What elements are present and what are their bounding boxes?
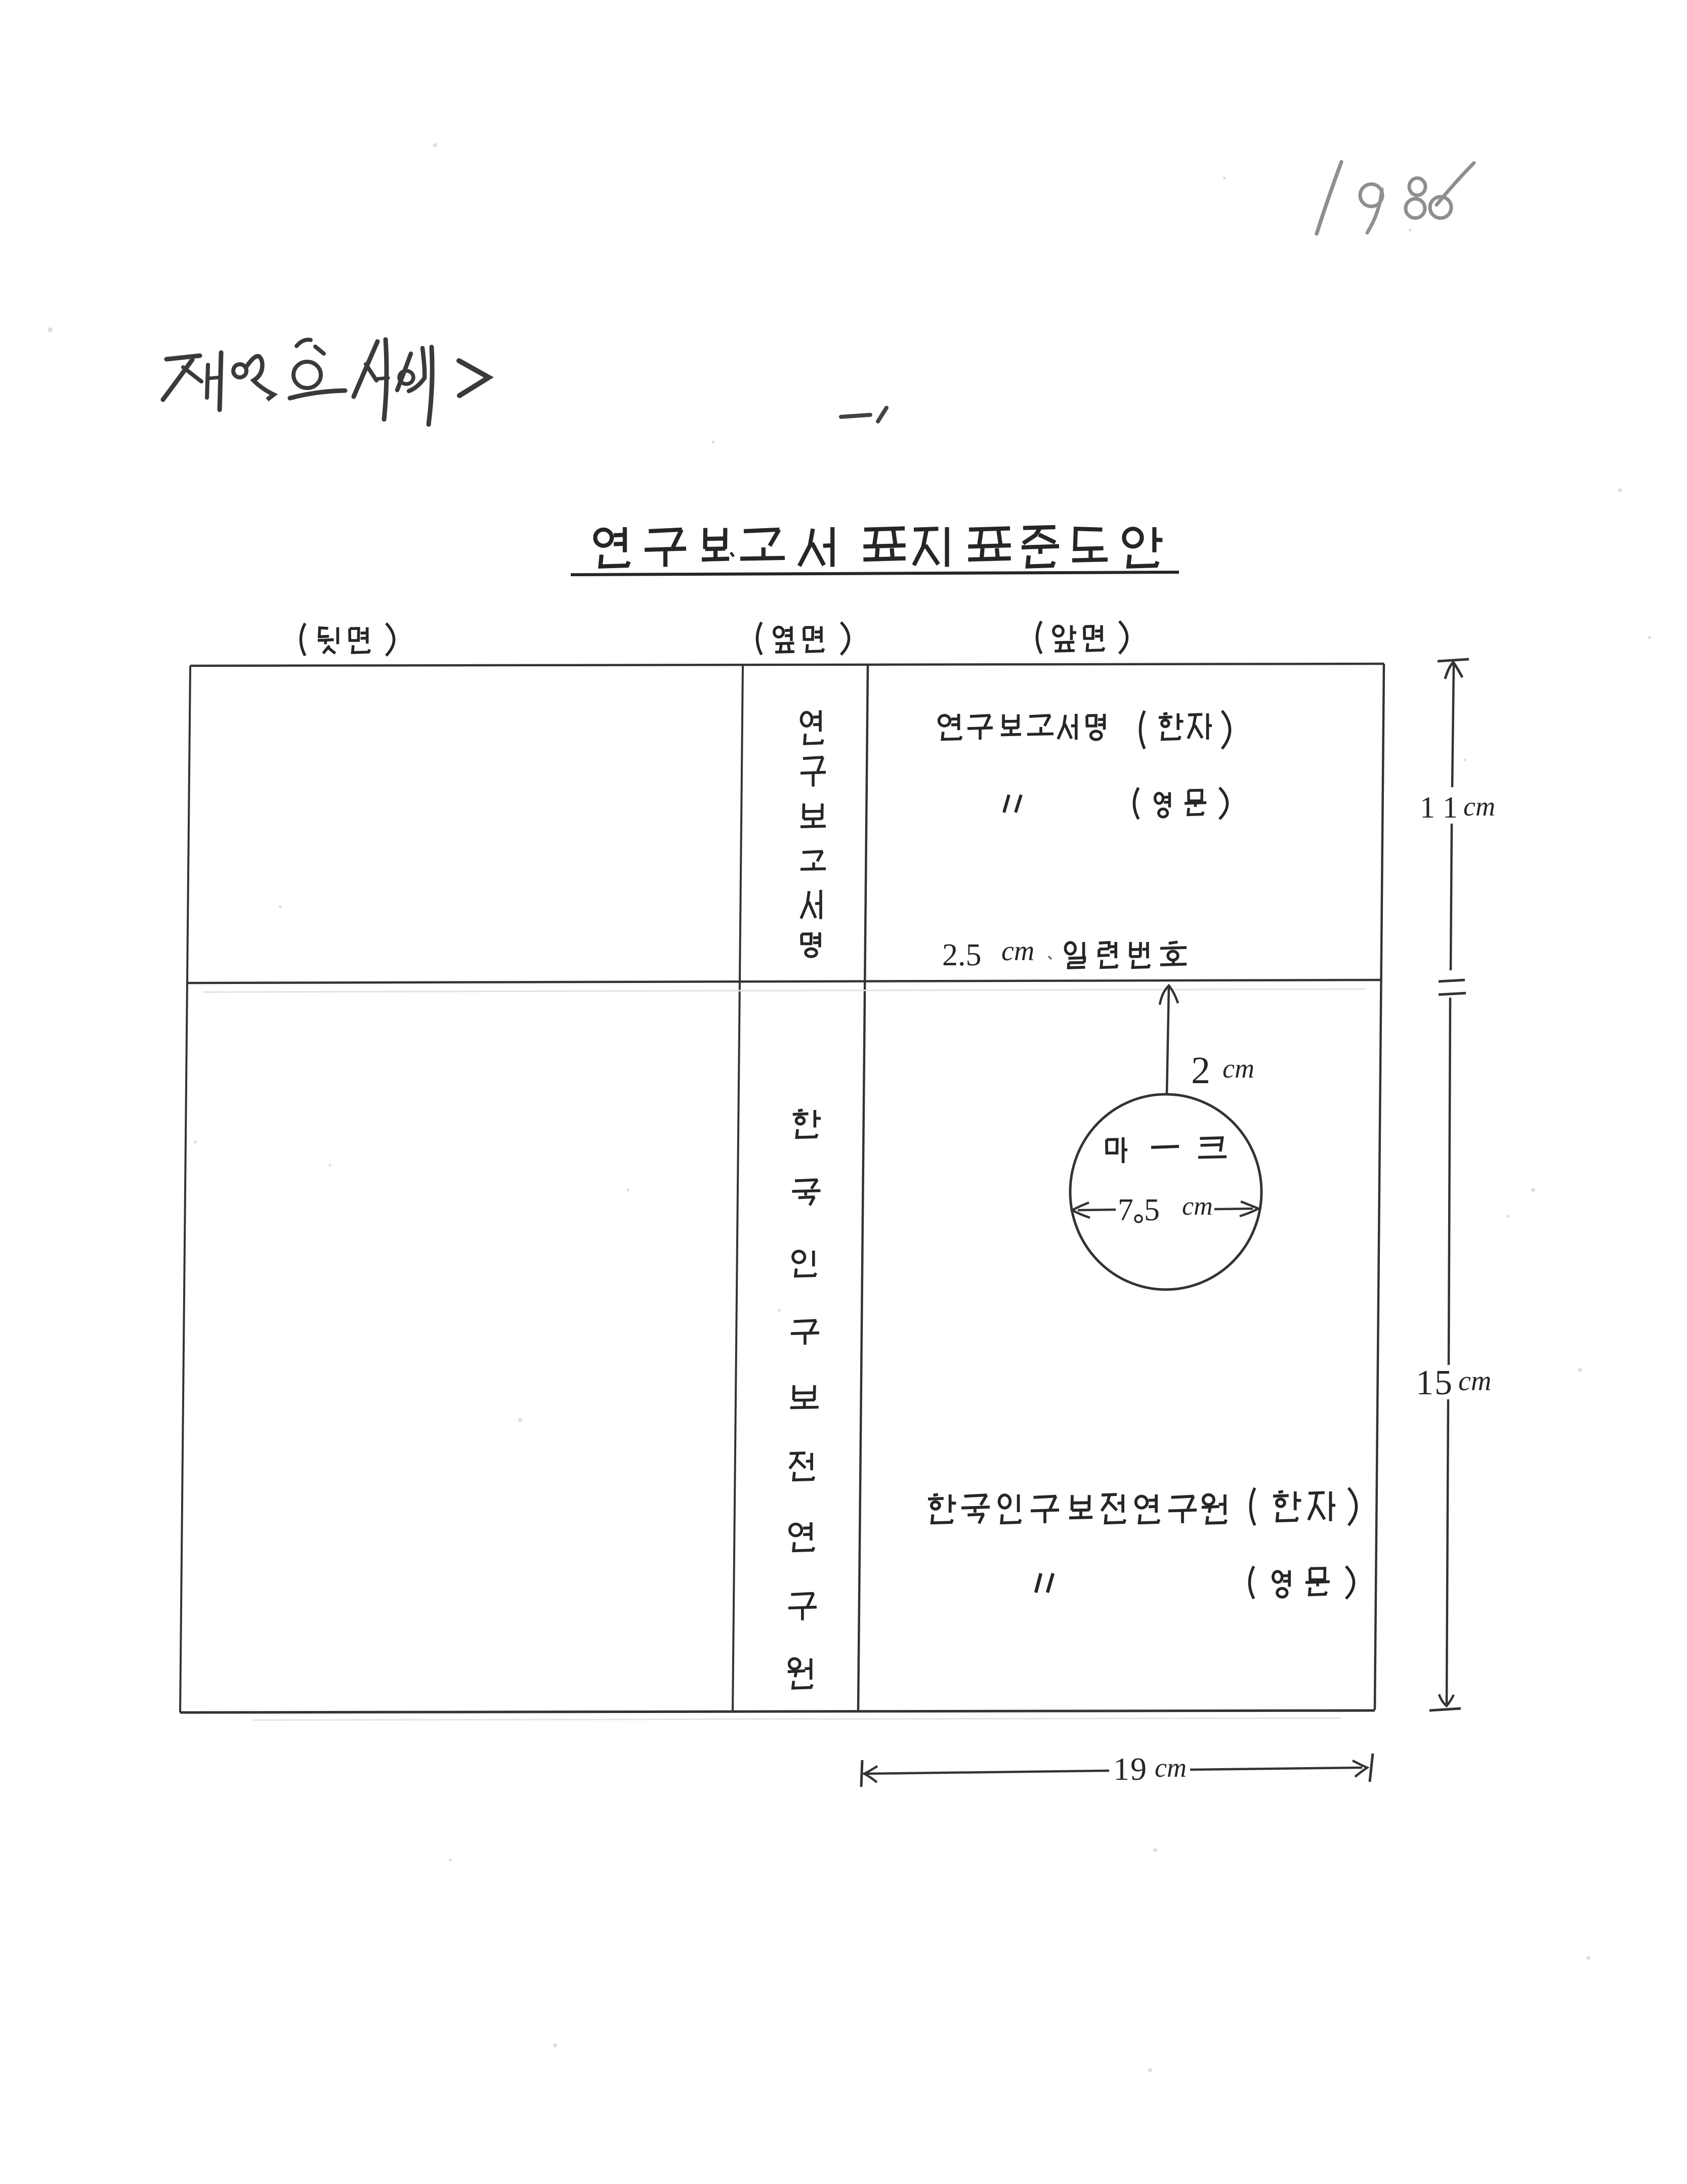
svg-text:cm: cm bbox=[1155, 1752, 1187, 1783]
svg-text:2.5: 2.5 bbox=[942, 938, 982, 972]
svg-text:cm: cm bbox=[1182, 1192, 1213, 1221]
svg-text:cm: cm bbox=[1001, 935, 1034, 967]
svg-text:cm: cm bbox=[1458, 1365, 1491, 1397]
svg-text:5: 5 bbox=[1144, 1193, 1160, 1227]
svg-text:cm: cm bbox=[1222, 1053, 1254, 1084]
svg-text:19: 19 bbox=[1113, 1751, 1148, 1787]
svg-text:2: 2 bbox=[1191, 1049, 1210, 1092]
svg-text:15: 15 bbox=[1416, 1363, 1453, 1402]
svg-text:1 1: 1 1 bbox=[1420, 791, 1458, 824]
svg-text:cm: cm bbox=[1463, 791, 1495, 822]
svg-text:7: 7 bbox=[1118, 1193, 1133, 1227]
